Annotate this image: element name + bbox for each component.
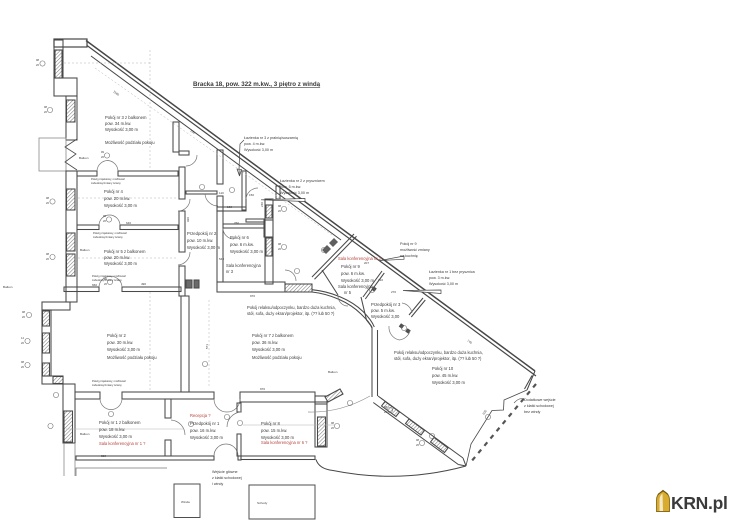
svg-text:pow. 6 m.kw.: pow. 6 m.kw. xyxy=(341,271,365,276)
svg-text:Pokój projektowy, możliwość: Pokój projektowy, możliwość xyxy=(92,274,127,278)
svg-text:Przedpokój nr 2: Przedpokój nr 2 xyxy=(187,231,217,236)
svg-text:nr 5: nr 5 xyxy=(344,290,352,295)
svg-text:Pokój projektowy, możliwość: Pokój projektowy, możliwość xyxy=(92,379,127,383)
svg-text:Sala konferencyjna: Sala konferencyjna xyxy=(338,284,374,289)
svg-text:Pokój nr 10: Pokój nr 10 xyxy=(432,366,454,371)
svg-text:Pokój nr 4: Pokój nr 4 xyxy=(104,189,124,194)
svg-text:pow. 16 m.kw.: pow. 16 m.kw. xyxy=(190,428,216,433)
svg-text:stół, sofa, duży ekran/projekt: stół, sofa, duży ekran/projektor, itp. (… xyxy=(394,356,482,361)
svg-text:150: 150 xyxy=(249,193,254,197)
svg-text:Przedpokój nr 1: Przedpokój nr 1 xyxy=(190,421,220,426)
svg-text:110: 110 xyxy=(219,191,224,195)
svg-text:Pokój relaksu/odpoczynku, bard: Pokój relaksu/odpoczynku, bardzo duża ku… xyxy=(394,350,483,355)
svg-text:Pokój projektowy, możliwość: Pokój projektowy, możliwość xyxy=(93,231,128,235)
svg-text:Wysokość 3,00 m: Wysokość 3,00 m xyxy=(104,261,138,266)
svg-text:Wysokość 3,00 m: Wysokość 3,00 m xyxy=(280,191,309,195)
svg-text:możliwość zmiany: możliwość zmiany xyxy=(400,248,430,252)
svg-text:Balkon: Balkon xyxy=(80,248,90,252)
svg-text:Wysokość 3,00 m: Wysokość 3,00 m xyxy=(252,347,286,352)
svg-text:bez windy: bez windy xyxy=(524,410,541,414)
svg-text:pow. 3 m.kw.: pow. 3 m.kw. xyxy=(429,276,450,280)
svg-text:Wysokość 3,00 m: Wysokość 3,00 m xyxy=(230,249,264,254)
svg-text:nr 3: nr 3 xyxy=(226,269,234,274)
svg-text:stół, sofa, duży ekran/projekt: stół, sofa, duży ekran/projektor, itp. (… xyxy=(247,311,335,316)
svg-text:pow. 36 m.kw.: pow. 36 m.kw. xyxy=(252,340,278,345)
svg-text:Balkon: Balkon xyxy=(79,156,89,160)
svg-text:Recepcja ?: Recepcja ? xyxy=(190,413,211,418)
svg-text:970: 970 xyxy=(260,387,265,391)
svg-text:240: 240 xyxy=(260,202,264,207)
svg-text:Wysokość 3,00 m: Wysokość 3,00 m xyxy=(341,278,375,283)
svg-text:Możliwość podziału pokoju: Możliwość podziału pokoju xyxy=(105,140,155,145)
svg-text:Możliwość podziału pokoju: Możliwość podziału pokoju xyxy=(252,355,302,360)
svg-text:Pokój nr 8: Pokój nr 8 xyxy=(261,421,281,426)
svg-text:pow. 6 m.kw.: pow. 6 m.kw. xyxy=(230,242,254,247)
svg-text:z klatki schodowej: z klatki schodowej xyxy=(212,476,242,480)
svg-text:zabudowy/zmiany ściany: zabudowy/zmiany ściany xyxy=(93,235,123,239)
svg-text:zabudowy/zmiany ściany: zabudowy/zmiany ściany xyxy=(92,383,122,387)
svg-text:Pokój nr 1 z balkonem: Pokój nr 1 z balkonem xyxy=(99,420,141,425)
svg-text:Łazienka nr 2 z prysznicem: Łazienka nr 2 z prysznicem xyxy=(280,179,325,183)
svg-text:Sala konferencyjna nr 1 ?: Sala konferencyjna nr 1 ? xyxy=(99,441,146,446)
svg-text:Bracka 18, pow. 322 m.kw., 3 p: Bracka 18, pow. 322 m.kw., 3 piętro z wi… xyxy=(193,81,321,88)
svg-text:571: 571 xyxy=(205,344,209,349)
svg-text:Pokój nr 5 z balkonem: Pokój nr 5 z balkonem xyxy=(104,249,146,254)
svg-text:pow. 10 m.kw.: pow. 10 m.kw. xyxy=(187,238,213,243)
svg-text:Wysokość 3,00 m: Wysokość 3,00 m xyxy=(105,127,139,132)
svg-text:Wysokość 3,00 m: Wysokość 3,00 m xyxy=(187,245,221,250)
svg-text:Łazienka nr 3 z pralnią/suszar: Łazienka nr 3 z pralnią/suszarnią xyxy=(244,136,299,140)
svg-text:Pokój nr 9: Pokój nr 9 xyxy=(400,242,417,246)
svg-text:Wysokość 3,00 m: Wysokość 3,00 m xyxy=(432,380,466,385)
svg-text:pow. 5 m.kw.: pow. 5 m.kw. xyxy=(371,308,395,313)
svg-text:Dodatkowe wejście: Dodatkowe wejście xyxy=(524,398,556,402)
svg-text:pow. 15 m.kw.: pow. 15 m.kw. xyxy=(261,428,287,433)
svg-text:KRN.pl: KRN.pl xyxy=(671,493,728,513)
svg-text:558: 558 xyxy=(101,454,106,458)
svg-text:Pokój nr 9: Pokój nr 9 xyxy=(341,264,361,269)
svg-text:Pokój nr 7 z balkonem: Pokój nr 7 z balkonem xyxy=(252,333,294,338)
svg-text:Wysokość 3,00 m: Wysokość 3,00 m xyxy=(429,282,458,286)
svg-text:Sala konferencyjna nr 2: Sala konferencyjna nr 2 xyxy=(338,256,382,261)
svg-text:pow. 45 m.kw.: pow. 45 m.kw. xyxy=(432,373,458,378)
svg-text:pow. 34 m.kw.: pow. 34 m.kw. xyxy=(105,121,131,126)
svg-text:Pokój nr 6: Pokój nr 6 xyxy=(230,235,250,240)
svg-text:970: 970 xyxy=(250,294,255,298)
svg-text:Pokój projektowy, możliwość: Pokój projektowy, możliwość xyxy=(91,177,126,181)
svg-text:Balkon: Balkon xyxy=(80,432,90,436)
svg-text:Wysokość 3,00 m: Wysokość 3,00 m xyxy=(99,434,133,439)
svg-text:Balkon: Balkon xyxy=(328,370,338,374)
svg-text:490: 490 xyxy=(141,282,146,286)
svg-text:Łazienka nr 1 bez prysznica: Łazienka nr 1 bez prysznica xyxy=(429,270,476,274)
svg-text:760: 760 xyxy=(234,221,239,225)
svg-text:pow. 4 m.kw.: pow. 4 m.kw. xyxy=(244,142,265,146)
svg-text:210: 210 xyxy=(378,278,383,282)
svg-text:Wejście główne: Wejście główne xyxy=(212,470,238,474)
svg-text:zabudowy/zmiany ściany: zabudowy/zmiany ściany xyxy=(92,278,122,282)
svg-text:i windy: i windy xyxy=(212,482,223,486)
svg-text:pow. 30 m.kw.: pow. 30 m.kw. xyxy=(107,340,133,345)
svg-text:Schody: Schody xyxy=(257,501,268,505)
svg-text:Pokój relaksu/odpoczynku, bard: Pokój relaksu/odpoczynku, bardzo duża ku… xyxy=(247,305,336,310)
svg-text:Pokój nr 2: Pokój nr 2 xyxy=(107,333,127,338)
svg-text:pow. 20 m.kw.: pow. 20 m.kw. xyxy=(104,196,130,201)
svg-text:640: 640 xyxy=(126,221,131,225)
svg-text:Wysokość 3,00 m: Wysokość 3,00 m xyxy=(190,435,224,440)
svg-text:207: 207 xyxy=(364,261,369,265)
svg-text:Wysokość 3,00: Wysokość 3,00 xyxy=(371,314,400,319)
svg-text:Wysokość 3,00 m: Wysokość 3,00 m xyxy=(107,347,141,352)
svg-text:z klatki schodowej: z klatki schodowej xyxy=(524,404,554,408)
svg-text:540: 540 xyxy=(219,257,224,261)
svg-text:Sala konferencyjna: Sala konferencyjna xyxy=(226,263,262,268)
svg-text:Sala konferencyjna nr 6 ?: Sala konferencyjna nr 6 ? xyxy=(261,440,308,445)
svg-text:pow. 18 m.kw.: pow. 18 m.kw. xyxy=(99,427,125,432)
svg-text:pow. 20 m.kw.: pow. 20 m.kw. xyxy=(104,255,130,260)
svg-text:Wysokość 3,00 m: Wysokość 3,00 m xyxy=(104,203,138,208)
svg-text:130: 130 xyxy=(227,205,232,209)
svg-text:270: 270 xyxy=(391,290,396,294)
svg-text:Pokój nr 3 z balkonem: Pokój nr 3 z balkonem xyxy=(105,115,147,120)
svg-text:zabudowy/zmiany ściany: zabudowy/zmiany ściany xyxy=(91,181,121,185)
svg-text:Przedpokój nr 3: Przedpokój nr 3 xyxy=(371,302,401,307)
svg-text:920: 920 xyxy=(186,217,190,222)
svg-text:pow. 5 m.kw.: pow. 5 m.kw. xyxy=(280,185,301,189)
svg-text:Balkon: Balkon xyxy=(3,285,13,289)
svg-text:na kuchnię: na kuchnię xyxy=(400,254,418,258)
svg-text:Możliwość podziału pokoju: Możliwość podziału pokoju xyxy=(107,355,157,360)
svg-text:660: 660 xyxy=(92,283,97,287)
svg-text:Winda: Winda xyxy=(181,500,190,504)
svg-text:Wysokość 3,00 m: Wysokość 3,00 m xyxy=(244,148,273,152)
